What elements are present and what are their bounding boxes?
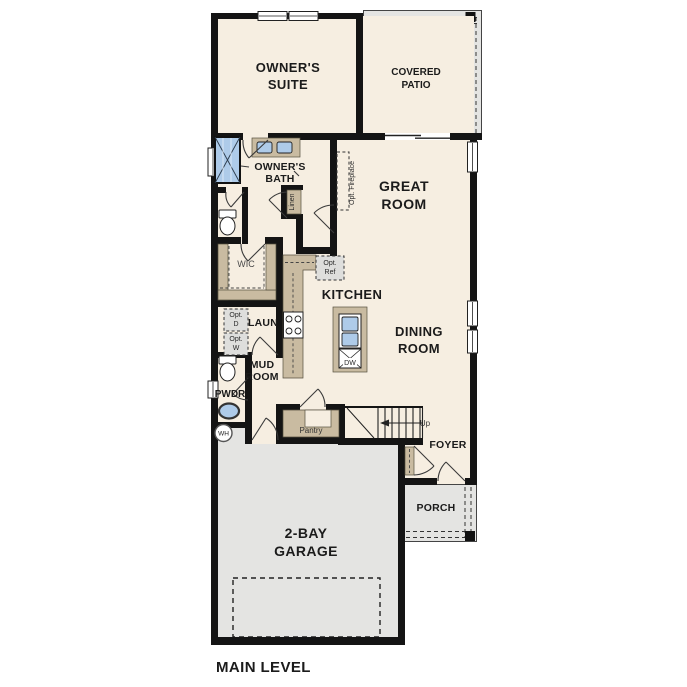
window bbox=[468, 330, 478, 353]
toilet bbox=[219, 210, 236, 235]
garage-label: GARAGE bbox=[274, 543, 338, 559]
opt-washer-label: Opt. bbox=[229, 336, 242, 343]
floor-plan-drawing: OWNER'S SUITE COVERED PATIO OWNER'S BATH… bbox=[0, 0, 687, 687]
great-room-label: GREAT bbox=[379, 178, 429, 194]
foyer-label: FOYER bbox=[429, 439, 466, 451]
window bbox=[468, 142, 478, 172]
wic-label: WIC bbox=[237, 259, 255, 269]
sliding-door bbox=[385, 133, 450, 140]
opt-ref-label: Opt. bbox=[323, 260, 336, 267]
dining-room-label: DINING bbox=[395, 324, 443, 339]
water-heater-label: WH bbox=[218, 431, 229, 438]
dining-room-label: ROOM bbox=[398, 341, 440, 356]
window bbox=[468, 301, 478, 326]
cooktop bbox=[284, 312, 304, 338]
powder-toilet bbox=[219, 356, 236, 381]
double-vanity bbox=[252, 138, 300, 157]
covered-patio-label: PATIO bbox=[401, 80, 430, 91]
mud-room-label: ROOM bbox=[245, 371, 279, 383]
opt-ref-label: Ref bbox=[325, 269, 336, 276]
window bbox=[258, 12, 287, 21]
foyer-closet bbox=[405, 447, 414, 475]
stairs-up-label: Up bbox=[420, 419, 431, 428]
porch-label: PORCH bbox=[417, 502, 456, 514]
floor-plan-page: OWNER'S SUITE COVERED PATIO OWNER'S BATH… bbox=[0, 0, 687, 687]
opt-dryer-label: D bbox=[233, 321, 238, 328]
kitchen-label: KITCHEN bbox=[322, 287, 383, 302]
covered-patio-label: COVERED bbox=[391, 67, 440, 78]
window bbox=[289, 12, 318, 21]
powder-label: PWDR bbox=[215, 389, 246, 400]
pantry-label: Pantry bbox=[299, 426, 322, 435]
owners-bath-label: BATH bbox=[265, 173, 294, 185]
powder-sink bbox=[219, 404, 239, 419]
garage-label: 2-BAY bbox=[285, 525, 328, 541]
shower bbox=[215, 137, 240, 183]
great-room-label: ROOM bbox=[381, 196, 426, 212]
owners-suite-label: OWNER'S bbox=[256, 60, 320, 75]
opt-fireplace-label: Opt. Fireplace bbox=[349, 161, 356, 205]
linen-label: Linen bbox=[289, 193, 296, 210]
owners-bath-label: OWNER'S bbox=[254, 161, 305, 173]
plan-title: MAIN LEVEL bbox=[216, 659, 311, 676]
porch-post bbox=[465, 531, 475, 541]
mud-room-label: MUD bbox=[250, 359, 275, 371]
dishwasher-label: DW bbox=[344, 360, 356, 367]
owners-suite-label: SUITE bbox=[268, 77, 308, 92]
opt-washer-label: W bbox=[233, 345, 240, 352]
laundry-label: LAUN bbox=[248, 317, 278, 329]
opt-dryer-label: Opt. bbox=[229, 312, 242, 319]
